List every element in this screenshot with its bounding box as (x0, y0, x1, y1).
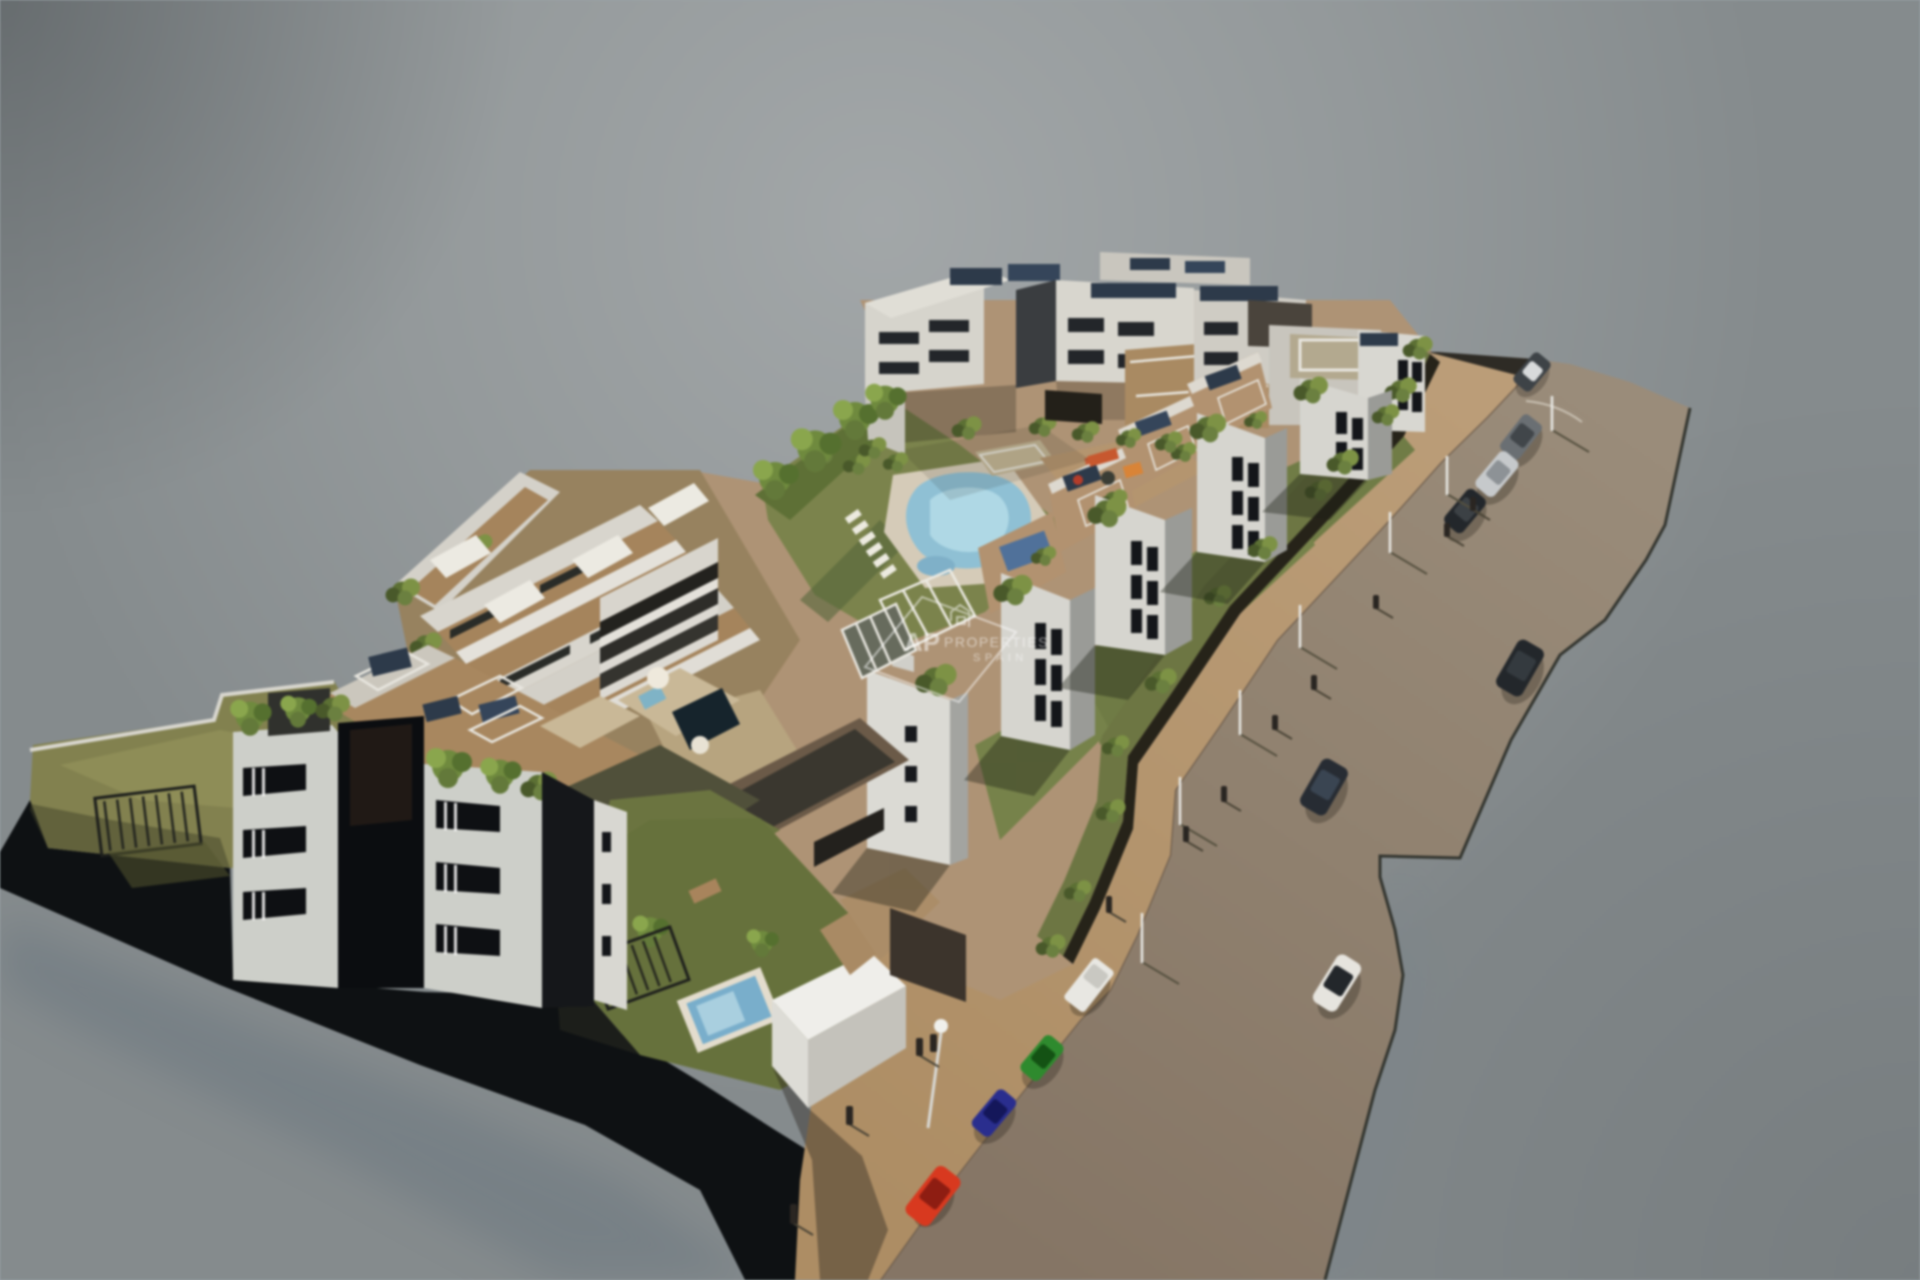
svg-text:SPAIN: SPAIN (973, 652, 1028, 664)
svg-text:AP: AP (904, 627, 940, 657)
svg-text:PROPERTIES: PROPERTIES (944, 634, 1049, 650)
